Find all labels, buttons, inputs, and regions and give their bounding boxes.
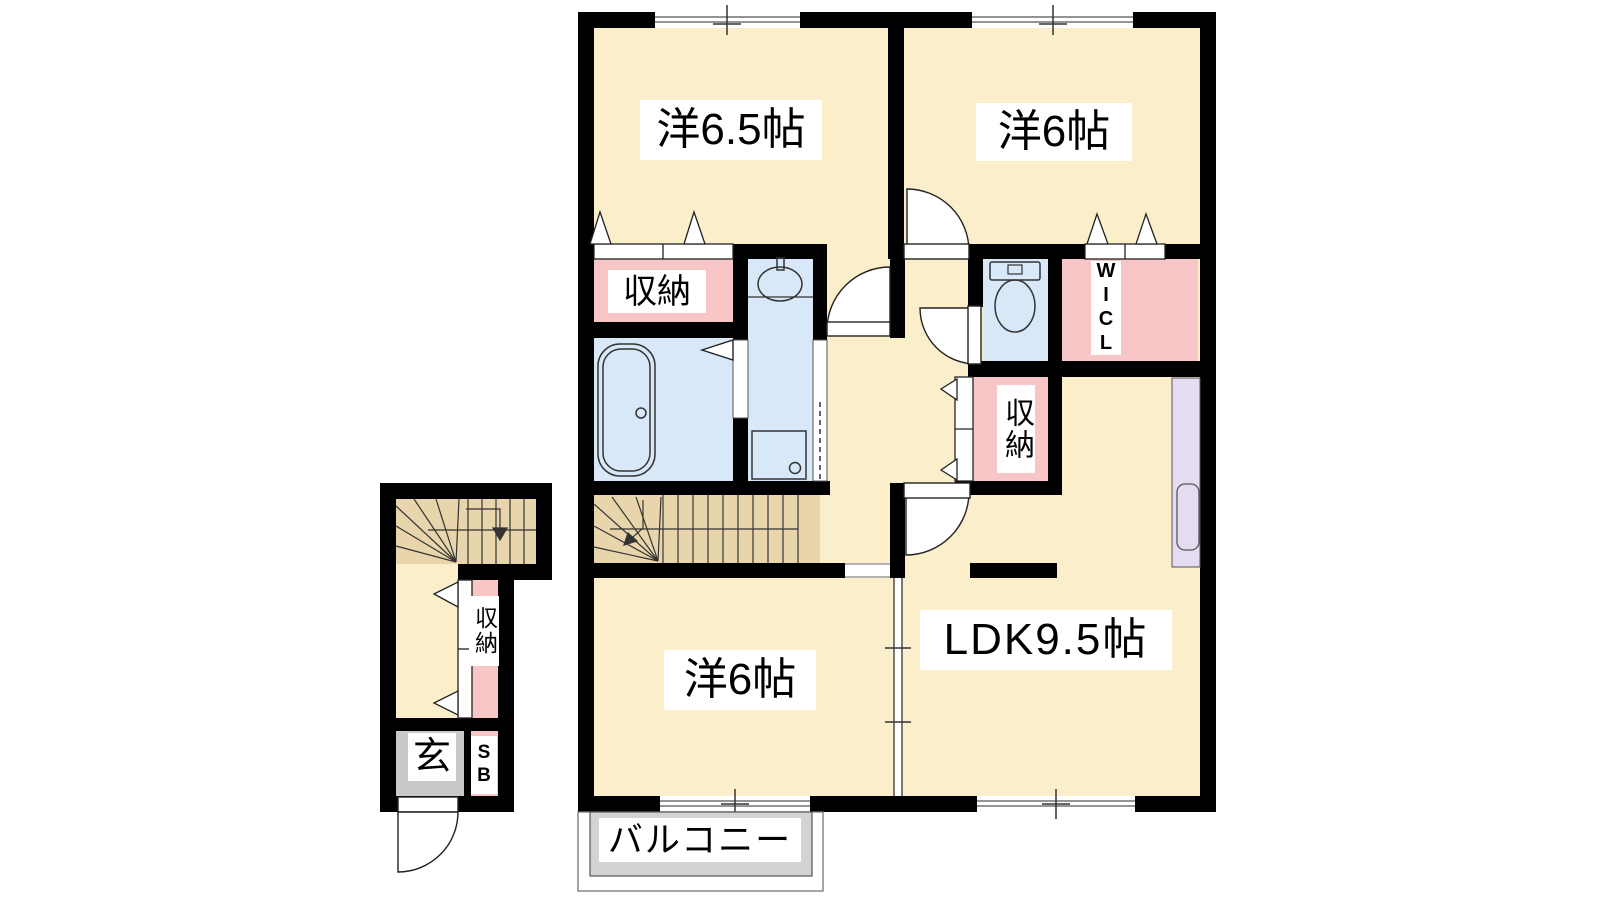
label-wicl: WICL bbox=[1091, 261, 1121, 355]
room-label-bedroom1: 洋6.5帖 bbox=[640, 100, 822, 160]
door-entry bbox=[398, 797, 458, 872]
label-shoe-box: SB bbox=[471, 736, 497, 794]
opening-bedroom3 bbox=[845, 563, 890, 578]
label-closet-bedroom1: 収納 bbox=[608, 270, 706, 313]
room-label-balcony: バルコニー bbox=[599, 818, 801, 862]
room-label-bedroom3: 洋6帖 bbox=[664, 650, 816, 710]
room-label-bedroom2: 洋6帖 bbox=[976, 103, 1132, 161]
room-label-ldk: LDK9.5帖 bbox=[920, 610, 1172, 670]
kitchen-counter bbox=[1172, 378, 1200, 567]
label-closet-hall: 収納 bbox=[469, 596, 499, 666]
label-closet-ldk: 収納 bbox=[997, 385, 1035, 473]
label-entrance: 玄 bbox=[408, 733, 456, 781]
floor-plan: 洋6.5帖 洋6帖 収納 WICL 収納 収納 玄 SB 洋6帖 LDK9.5帖… bbox=[0, 0, 1600, 900]
door-washroom-slide bbox=[813, 340, 827, 481]
